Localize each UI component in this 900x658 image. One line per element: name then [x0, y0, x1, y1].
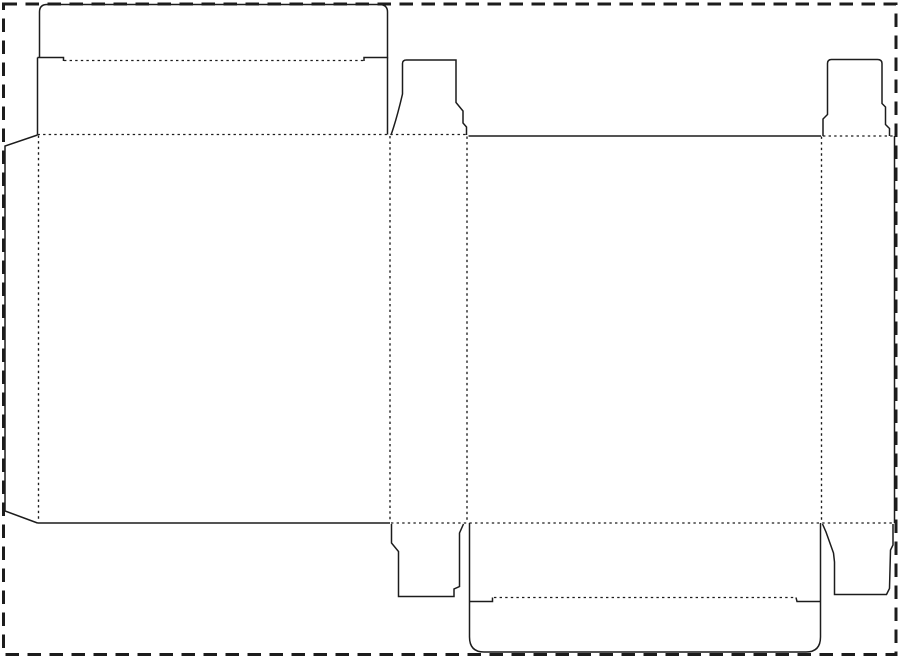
bottom-dust-flap-side1: [392, 524, 464, 597]
page-border: [4, 4, 897, 655]
dieline-drawing: [0, 0, 900, 658]
bottom-lid-right-shoulder: [796, 598, 821, 602]
top-tuck-flap-outline: [38, 5, 388, 62]
top-dust-flap-side1: [391, 60, 467, 135]
glue-flap-outline: [5, 135, 38, 523]
dieline-page: [0, 0, 900, 658]
top-dust-flap-side2: [823, 60, 890, 137]
bottom-lid-left-shoulder: [470, 598, 493, 602]
bottom-lid-outline: [470, 523, 821, 652]
bottom-dust-flap-side2: [823, 524, 894, 595]
